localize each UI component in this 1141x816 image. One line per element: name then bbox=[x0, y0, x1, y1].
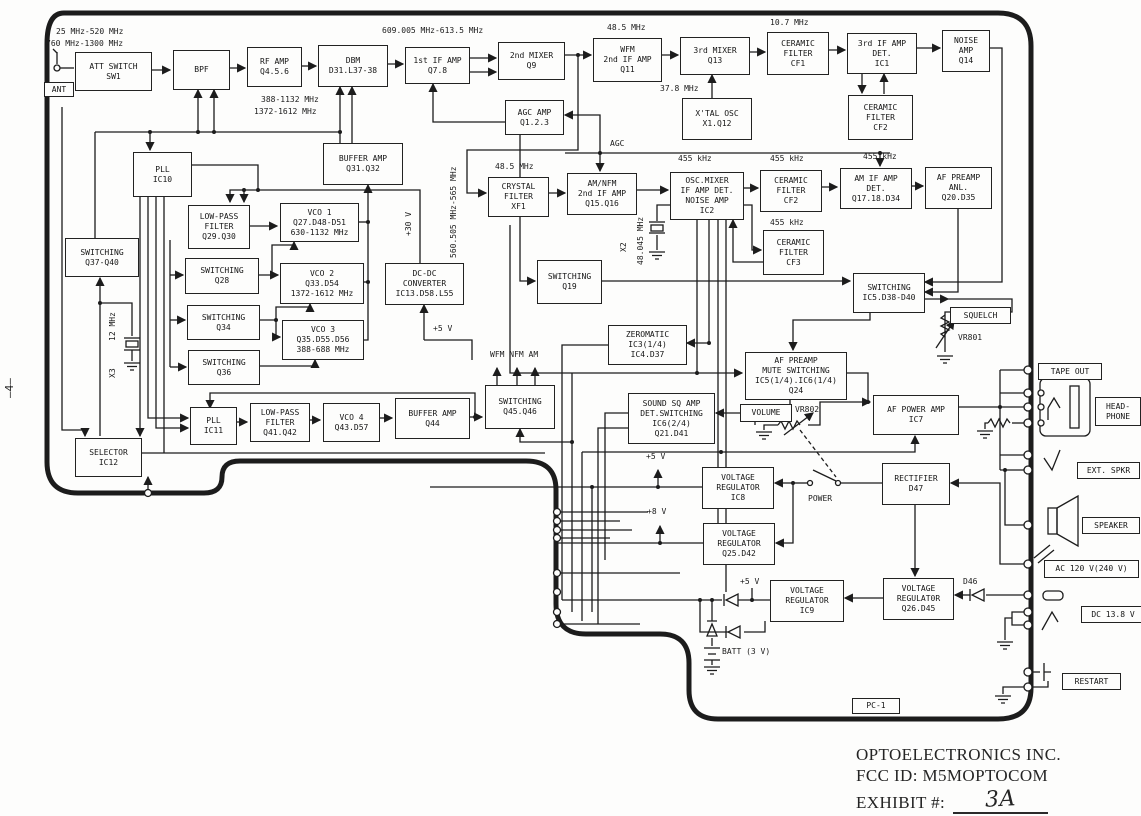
block-line: VOLTAGE bbox=[790, 586, 824, 596]
block-line: Q7.8 bbox=[428, 66, 447, 76]
block-line: BUFFER AMP bbox=[339, 154, 387, 164]
block-line: VCO 2 bbox=[310, 269, 334, 279]
block-line: IC7 bbox=[909, 415, 923, 425]
block-rf-amp: RF AMPQ4.5.6 bbox=[247, 47, 302, 87]
block-line: Q9 bbox=[527, 61, 537, 71]
block-line: X'TAL OSC bbox=[695, 109, 738, 119]
block-line: FILTER bbox=[866, 113, 895, 123]
block-line: AF PREAMP bbox=[774, 356, 817, 366]
block-noise-amp: NOISEAMPQ14 bbox=[942, 30, 990, 72]
tag-text: VOLUME bbox=[752, 408, 781, 417]
volume-tag: VOLUME bbox=[740, 404, 792, 422]
block-ceramic-filter-cf2-top: CERAMICFILTERCF2 bbox=[848, 95, 913, 140]
exhibit-footer: OPTOELECTRONICS INC. FCC ID: M5MOPTOCOM … bbox=[856, 744, 1061, 814]
power-label: POWER bbox=[808, 495, 832, 504]
block-ceramic-filter-cf2: CERAMICFILTERCF2 bbox=[760, 170, 822, 212]
block-ceramic-filter-cf3: CERAMICFILTERCF3 bbox=[763, 230, 824, 275]
block-line: IC6(2/4) bbox=[652, 419, 691, 429]
freq-label-12mhz: 12 MHz bbox=[109, 312, 118, 341]
block-line: AM/NFM bbox=[588, 179, 617, 189]
restart-button-icon bbox=[1044, 663, 1051, 681]
headphone-jack-icon bbox=[1040, 378, 1090, 436]
block-amnfm-2nd-if-amp: AM/NFM2nd IF AMPQ15.Q16 bbox=[567, 173, 637, 215]
block-switching-q19: SWITCHINGQ19 bbox=[537, 260, 602, 304]
block-line: Q41.Q42 bbox=[263, 428, 297, 438]
block-line: SWITCHING bbox=[200, 266, 243, 276]
tape-out-tag: TAPE OUT bbox=[1038, 363, 1102, 380]
tag-text: TAPE OUT bbox=[1051, 367, 1090, 376]
block-line: IC5.D38-D40 bbox=[863, 293, 916, 303]
block-line: 1372-1612 MHz bbox=[291, 289, 354, 299]
block-3rd-mixer: 3rd MIXERQ13 bbox=[680, 37, 750, 75]
freq-label-48-5-mid: 48.5 MHz bbox=[495, 163, 534, 172]
block-line: AF POWER AMP bbox=[887, 405, 945, 415]
block-voltage-regulator-ic9: VOLTAGEREGULATORIC9 bbox=[770, 580, 844, 622]
block-line: SELECTOR bbox=[89, 448, 128, 458]
block-line: CF2 bbox=[873, 123, 887, 133]
tag-text: ANT bbox=[52, 85, 66, 94]
block-line: CERAMIC bbox=[781, 39, 815, 49]
block-line: DC-DC bbox=[412, 269, 436, 279]
block-line: LOW-PASS bbox=[261, 408, 300, 418]
company-name: OPTOELECTRONICS INC. bbox=[856, 744, 1061, 765]
block-line: CERAMIC bbox=[777, 238, 811, 248]
freq-label-455-c: 455 kHz bbox=[863, 153, 897, 162]
block-1st-if-amp: 1st IF AMPQ7.8 bbox=[405, 47, 470, 84]
exhibit-label: EXHIBIT #: bbox=[856, 792, 945, 813]
block-line: NOISE bbox=[954, 36, 978, 46]
block-line: ANL. bbox=[949, 183, 968, 193]
block-osc-mixer-ic2: OSC.MIXERIF AMP DET.NOISE AMPIC2 bbox=[670, 172, 744, 220]
freq-label-1372-1612: 1372-1612 MHz bbox=[254, 108, 317, 117]
dc-input-tag: DC 13.8 V bbox=[1081, 606, 1141, 623]
block-line: Q17.18.D34 bbox=[852, 194, 900, 204]
fcc-id: FCC ID: M5MOPTOCOM bbox=[856, 765, 1061, 786]
block-line: FILTER bbox=[504, 192, 533, 202]
freq-label-455-a: 455 kHz bbox=[678, 155, 712, 164]
block-line: DET. bbox=[866, 184, 885, 194]
block-crystal-filter-xf1: CRYSTALFILTERXF1 bbox=[488, 177, 549, 217]
block-line: Q28 bbox=[215, 276, 229, 286]
block-line: RF AMP bbox=[260, 57, 289, 67]
block-line: Q20.D35 bbox=[942, 193, 976, 203]
block-line: Q4.5.6 bbox=[260, 67, 289, 77]
block-line: CF1 bbox=[791, 59, 805, 69]
block-line: SWITCHING bbox=[867, 283, 910, 293]
block-line: IC12 bbox=[99, 458, 118, 468]
block-line: VCO 1 bbox=[307, 208, 331, 218]
block-vco1: VCO 1Q27.D48-D51630-1132 MHz bbox=[280, 203, 359, 242]
block-line: Q26.D45 bbox=[902, 604, 936, 614]
tag-text: DC 13.8 V bbox=[1091, 610, 1134, 619]
block-switching-ic5: SWITCHINGIC5.D38-D40 bbox=[853, 273, 925, 313]
headphone-tag: HEAD-PHONE bbox=[1095, 397, 1141, 426]
block-line: PLL bbox=[206, 416, 220, 426]
block-line: PLL bbox=[155, 165, 169, 175]
agc-label: AGC bbox=[610, 140, 624, 149]
block-line: DET. bbox=[872, 49, 891, 59]
block-line: FILTER bbox=[777, 186, 806, 196]
ant-tag: ANT bbox=[44, 82, 74, 97]
block-line: VCO 3 bbox=[311, 325, 335, 335]
pc1-tag: PC-1 bbox=[852, 698, 900, 714]
block-line: IC10 bbox=[153, 175, 172, 185]
mode-labels: WFM NFM AM bbox=[490, 351, 538, 360]
antenna-connector bbox=[53, 49, 57, 64]
block-line: SOUND SQ AMP bbox=[643, 399, 701, 409]
block-switching-q37-q40: SWITCHINGQ37-Q40 bbox=[65, 238, 139, 277]
block-line: 3rd IF AMP bbox=[858, 39, 906, 49]
block-line: Q44 bbox=[425, 419, 439, 429]
block-line: ZEROMATIC bbox=[626, 330, 669, 340]
block-line: Q34 bbox=[216, 323, 230, 333]
block-line: 1st IF AMP bbox=[413, 56, 461, 66]
block-line: X1.Q12 bbox=[703, 119, 732, 129]
block-line: LOW-PASS bbox=[200, 212, 239, 222]
block-vco3: VCO 3Q35.D55.D56388-688 MHz bbox=[282, 320, 364, 360]
block-line: SW1 bbox=[106, 72, 120, 82]
d46-label: D46 bbox=[963, 578, 977, 587]
block-line: REGULAT0R bbox=[897, 594, 940, 604]
block-low-pass-filter-q29: LOW-PASSFILTERQ29.Q30 bbox=[188, 205, 250, 249]
block-bpf: BPF bbox=[173, 50, 230, 90]
plus-5v-label-c: +5 V bbox=[740, 578, 759, 587]
page-number: —4— bbox=[4, 378, 16, 398]
block-line: IC4.D37 bbox=[631, 350, 665, 360]
block-line: Q19 bbox=[562, 282, 576, 292]
tag-text: SQUELCH bbox=[964, 311, 998, 320]
block-2nd-mixer: 2nd MIXERQ9 bbox=[498, 42, 565, 80]
block-line: IC1 bbox=[875, 59, 889, 69]
plus-5v-label-b: +5 V bbox=[646, 453, 665, 462]
block-line: Q33.D54 bbox=[305, 279, 339, 289]
block-line: WFM bbox=[620, 45, 634, 55]
block-line: REGULATOR bbox=[785, 596, 828, 606]
freq-label-48-045: 48.045 MHz bbox=[637, 217, 646, 265]
block-line: IC5(1/4).IC6(1/4) bbox=[755, 376, 837, 386]
tag-text: PHONE bbox=[1106, 412, 1130, 421]
squelch-tag: SQUELCH bbox=[950, 307, 1011, 324]
tag-text: PC-1 bbox=[866, 701, 885, 710]
block-line: AM IF AMP bbox=[854, 174, 897, 184]
block-agc-amp: AGC AMPQ1.2.3 bbox=[505, 100, 564, 135]
block-buffer-amp-q31: BUFFER AMPQ31.Q32 bbox=[323, 143, 403, 185]
dc-jack-icon bbox=[1042, 591, 1063, 630]
block-line: SWITCHING bbox=[202, 313, 245, 323]
freq-label-input2: 760 MHz-1300 MHz bbox=[46, 40, 123, 49]
block-af-preamp-mute-switching: AF PREAMPMUTE SWITCHINGIC5(1/4).IC6(1/4)… bbox=[745, 352, 847, 400]
block-line: OSC.MIXER bbox=[685, 176, 728, 186]
block-line: 2nd IF AMP bbox=[603, 55, 651, 65]
freq-label-1st-if: 609.005 MHz-613.5 MHz bbox=[382, 27, 483, 36]
block-line: CERAMIC bbox=[864, 103, 898, 113]
block-zeromatic: ZEROMATICIC3(1/4)IC4.D37 bbox=[608, 325, 687, 365]
x2-label: X2 bbox=[620, 242, 629, 252]
block-line: CF3 bbox=[786, 258, 800, 268]
block-voltage-regulator-q26: VOLTAGEREGULAT0RQ26.D45 bbox=[883, 578, 954, 620]
power-switch-icon bbox=[808, 481, 841, 486]
freq-label-560-565: 560.505 MHz-565 MHz bbox=[450, 166, 459, 258]
block-line: Q11 bbox=[620, 65, 634, 75]
block-line: NOISE AMP bbox=[685, 196, 728, 206]
block-af-power-amp-ic7: AF POWER AMPIC7 bbox=[873, 395, 959, 435]
plus-30v-label: +30 V bbox=[405, 212, 414, 236]
block-line: AF PREAMP bbox=[937, 173, 980, 183]
block-line: Q37-Q40 bbox=[85, 258, 119, 268]
block-line: Q43.D57 bbox=[335, 423, 369, 433]
block-buffer-amp-q44: BUFFER AMPQ44 bbox=[395, 398, 470, 439]
block-line: IC3(1/4) bbox=[628, 340, 667, 350]
block-line: Q24 bbox=[789, 386, 803, 396]
block-line: Q21.D41 bbox=[655, 429, 689, 439]
freq-label-48-5-top: 48.5 MHz bbox=[607, 24, 646, 33]
freq-label-455-b: 455 kHz bbox=[770, 155, 804, 164]
plus-5v-label-a: +5 V bbox=[433, 325, 452, 334]
speaker-tag: SPEAKER bbox=[1082, 517, 1140, 534]
block-rectifier-d47: RECTIFIERD47 bbox=[882, 463, 950, 505]
block-line: IC13.D58.L55 bbox=[396, 289, 454, 299]
block-line: 2nd IF AMP bbox=[578, 189, 626, 199]
block-line: 3rd MIXER bbox=[693, 46, 736, 56]
tag-text: AC 120 V(240 V) bbox=[1055, 564, 1127, 573]
block-switching-q34: SWITCHINGQ34 bbox=[187, 305, 260, 340]
block-line: Q27.D48-D51 bbox=[293, 218, 346, 228]
block-line: DBM bbox=[346, 56, 360, 66]
block-line: REGULATOR bbox=[716, 483, 759, 493]
block-line: BPF bbox=[194, 65, 208, 75]
block-wfm-2nd-if-amp: WFM2nd IF AMPQ11 bbox=[593, 38, 662, 82]
block-line: Q15.Q16 bbox=[585, 199, 619, 209]
block-line: SWITCHING bbox=[202, 358, 245, 368]
block-line: IC8 bbox=[731, 493, 745, 503]
block-line: DET.SWITCHING bbox=[640, 409, 703, 419]
x3-label: X3 bbox=[109, 368, 118, 378]
block-switching-q45-q46: SWITCHINGQ45.Q46 bbox=[485, 385, 555, 429]
block-line: SWITCHING bbox=[80, 248, 123, 258]
block-line: IC2 bbox=[700, 206, 714, 216]
restart-tag: RESTART bbox=[1062, 673, 1121, 690]
block-line: FILTER bbox=[784, 49, 813, 59]
exhibit-underline: 3A bbox=[953, 787, 1048, 814]
block-att-switch: ATT SWITCHSW1 bbox=[75, 52, 152, 91]
block-vco2: VCO 2Q33.D541372-1612 MHz bbox=[280, 263, 364, 304]
block-line: D47 bbox=[909, 484, 923, 494]
block-line: IC9 bbox=[800, 606, 814, 616]
ext-spkr-tag: EXT. SPKR bbox=[1077, 462, 1140, 479]
block-line: CF2 bbox=[784, 196, 798, 206]
block-ceramic-filter-cf1: CERAMICFILTERCF1 bbox=[767, 32, 829, 75]
block-line: VOLTAGE bbox=[902, 584, 936, 594]
plus-8v-label: +8 V bbox=[647, 508, 666, 517]
tag-text: SPEAKER bbox=[1094, 521, 1128, 530]
tag-text: RESTART bbox=[1075, 677, 1109, 686]
block-line: D31.L37-38 bbox=[329, 66, 377, 76]
crystal-x2-icon bbox=[649, 222, 665, 233]
block-pll-ic11: PLLIC11 bbox=[190, 407, 237, 445]
block-line: 630-1132 MHz bbox=[291, 228, 349, 238]
block-am-if-amp-det: AM IF AMPDET.Q17.18.D34 bbox=[840, 168, 912, 209]
block-line: Q45.Q46 bbox=[503, 407, 537, 417]
block-line: VCO 4 bbox=[339, 413, 363, 423]
block-line: Q36 bbox=[217, 368, 231, 378]
block-line: Q13 bbox=[708, 56, 722, 66]
vr802-label: VR802 bbox=[795, 406, 819, 415]
tag-text: EXT. SPKR bbox=[1087, 466, 1130, 475]
block-selector-ic12: SELECTORIC12 bbox=[75, 438, 142, 477]
block-vco4: VCO 4Q43.D57 bbox=[323, 403, 380, 442]
block-line: Q35.D55.D56 bbox=[297, 335, 350, 345]
block-line: RECTIFIER bbox=[894, 474, 937, 484]
block-line: Q1.2.3 bbox=[520, 118, 549, 128]
block-voltage-regulator-ic8: VOLTAGEREGULATORIC8 bbox=[702, 467, 774, 509]
block-diagram-page: ATT SWITCHSW1 BPF RF AMPQ4.5.6 DBMD31.L3… bbox=[0, 0, 1141, 816]
freq-label-37-8: 37.8 MHz bbox=[660, 85, 699, 94]
block-line: VOLTAGE bbox=[722, 529, 756, 539]
block-pll-ic10: PLLIC10 bbox=[133, 152, 192, 197]
block-line: CRYSTAL bbox=[502, 182, 536, 192]
crystal-x3-icon bbox=[124, 338, 140, 350]
block-line: FILTER bbox=[266, 418, 295, 428]
block-line: CERAMIC bbox=[774, 176, 808, 186]
block-line: XF1 bbox=[511, 202, 525, 212]
block-line: AMP bbox=[959, 46, 973, 56]
block-dc-dc-converter: DC-DCCONVERTERIC13.D58.L55 bbox=[385, 263, 464, 305]
block-line: ATT SWITCH bbox=[89, 62, 137, 72]
vr801-label: VR801 bbox=[958, 334, 982, 343]
block-line: AGC AMP bbox=[518, 108, 552, 118]
freq-label-455-d: 455 kHz bbox=[770, 219, 804, 228]
block-switching-q28: SWITCHINGQ28 bbox=[185, 258, 259, 294]
diode-d46-icon bbox=[970, 589, 984, 601]
block-dbm: DBMD31.L37-38 bbox=[318, 45, 388, 87]
block-line: BUFFER AMP bbox=[408, 409, 456, 419]
speaker-icon bbox=[1048, 496, 1078, 546]
resistor-icon bbox=[988, 419, 1010, 427]
battery-icon bbox=[704, 648, 720, 665]
block-xtal-osc: X'TAL OSCX1.Q12 bbox=[682, 98, 752, 140]
block-line: SWITCHING bbox=[498, 397, 541, 407]
block-line: VOLTAGE bbox=[721, 473, 755, 483]
ext-speaker-jack-icon bbox=[1044, 450, 1060, 470]
batt-label: BATT (3 V) bbox=[722, 648, 770, 657]
block-line: FILTER bbox=[779, 248, 808, 258]
block-voltage-regulator-q25: VOLTAGEREGULATORQ25.D42 bbox=[703, 523, 775, 565]
ac-input-tag: AC 120 V(240 V) bbox=[1044, 560, 1139, 578]
block-line: IF AMP DET. bbox=[681, 186, 734, 196]
block-sound-sq-amp: SOUND SQ AMPDET.SWITCHINGIC6(2/4)Q21.D41 bbox=[628, 393, 715, 444]
tag-text: HEAD- bbox=[1106, 402, 1130, 411]
freq-label-388-1132: 388-1132 MHz bbox=[261, 96, 319, 105]
block-line: Q14 bbox=[959, 56, 973, 66]
block-line: IC11 bbox=[204, 426, 223, 436]
block-line: SWITCHING bbox=[548, 272, 591, 282]
block-line: Q31.Q32 bbox=[346, 164, 380, 174]
block-line: FILTER bbox=[205, 222, 234, 232]
block-line: 388-688 MHz bbox=[297, 345, 350, 355]
block-line: Q25.D42 bbox=[722, 549, 756, 559]
block-af-preamp-anl: AF PREAMPANL.Q20.D35 bbox=[925, 167, 992, 209]
block-switching-q36: SWITCHINGQ36 bbox=[188, 350, 260, 385]
freq-label-10-7: 10.7 MHz bbox=[770, 19, 809, 28]
block-low-pass-filter-q41: LOW-PASSFILTERQ41.Q42 bbox=[250, 403, 310, 442]
block-line: Q29.Q30 bbox=[202, 232, 236, 242]
block-line: CONVERTER bbox=[403, 279, 446, 289]
exhibit-value: 3A bbox=[985, 786, 1017, 813]
wiring-layer bbox=[0, 0, 1141, 816]
block-line: REGULATOR bbox=[717, 539, 760, 549]
block-line: MUTE SWITCHING bbox=[762, 366, 829, 376]
block-line: 2nd MIXER bbox=[510, 51, 553, 61]
freq-label-input1: 25 MHz-520 MHz bbox=[56, 28, 123, 37]
block-3rd-if-amp-det: 3rd IF AMPDET.IC1 bbox=[847, 33, 917, 74]
